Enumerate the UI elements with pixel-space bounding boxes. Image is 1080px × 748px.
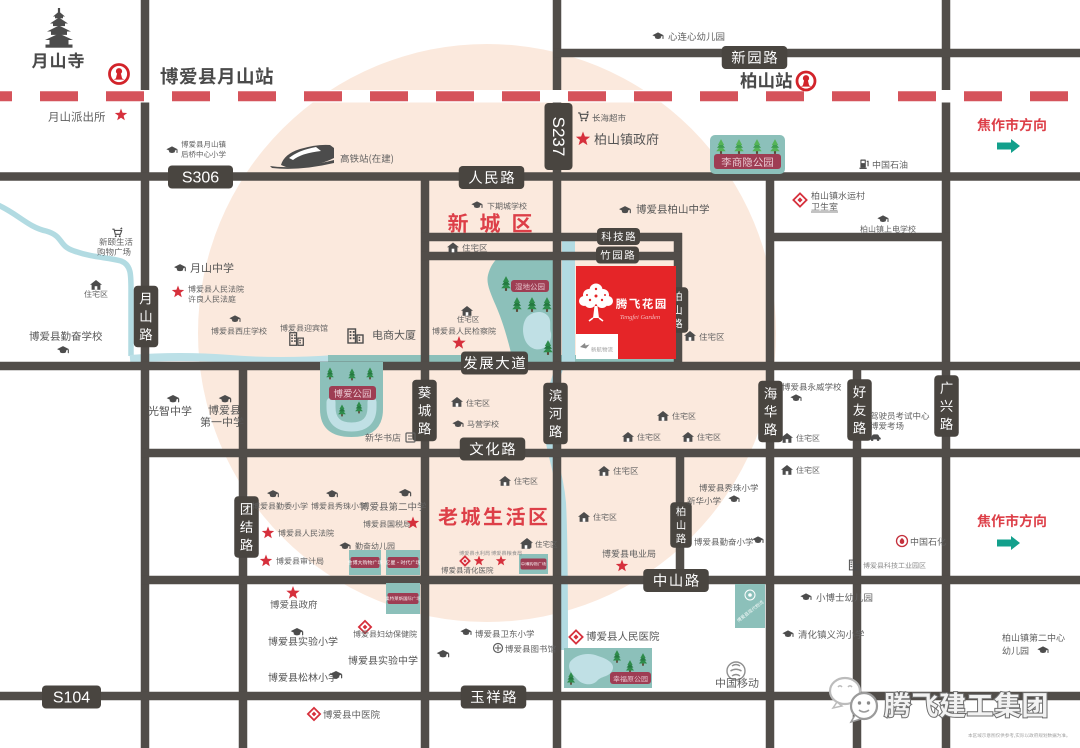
- svg-text:S237: S237: [549, 117, 568, 157]
- svg-text:S104: S104: [53, 690, 90, 707]
- svg-text:Tengfei Garden: Tengfei Garden: [620, 314, 660, 321]
- svg-text:S306: S306: [182, 170, 219, 187]
